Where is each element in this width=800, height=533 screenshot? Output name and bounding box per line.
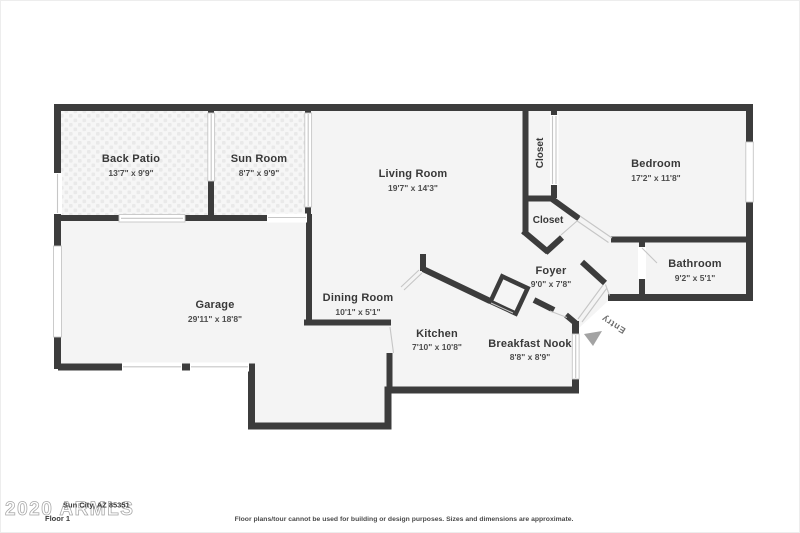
floor-area [58,104,753,429]
room-label-sun-room: Sun Room [231,153,288,165]
room-label-bathroom: Bathroom [668,258,722,270]
listing-address: Sun City, AZ 85351 [63,501,130,510]
room-dims-dining-room: 10'1" x 5'1" [335,307,380,317]
entry-arrow-icon [584,331,602,346]
room-label-garage: Garage [195,299,234,311]
footer: 2020 ARMLS Sun City, AZ 85351 Floor 1 Fl… [5,499,573,523]
disclaimer-text: Floor plans/tour cannot be used for buil… [235,516,574,523]
room-label-closet-lower: Closet [533,215,564,226]
room-dims-bedroom: 17'2" x 11'8" [631,173,680,183]
floor-label: Floor 1 [45,514,70,523]
room-label-breakfast-nook: Breakfast Nook [488,338,572,350]
room-label-foyer: Foyer [536,265,567,277]
room-dims-sun-room: 8'7" x 9'9" [239,168,279,178]
room-label-living-room: Living Room [379,168,448,180]
room-dims-foyer: 9'0" x 7'8" [531,279,571,289]
room-label-back-patio: Back Patio [102,153,160,165]
room-dims-back-patio: 13'7" x 9'9" [108,168,153,178]
floor-plan-page: Back Patio 13'7" x 9'9" Sun Room 8'7" x … [0,0,800,533]
room-label-closet-upper: Closet [535,137,546,168]
room-label-bedroom: Bedroom [631,158,681,170]
room-label-dining-room: Dining Room [323,292,394,304]
room-dims-living-room: 19'7" x 14'3" [388,183,438,193]
room-dims-bathroom: 9'2" x 5'1" [675,273,715,283]
floor-plan-canvas: Back Patio 13'7" x 9'9" Sun Room 8'7" x … [1,1,800,533]
room-dims-breakfast-nook: 8'8" x 8'9" [510,352,550,362]
room-dims-kitchen: 7'10" x 10'8" [412,342,462,352]
room-dims-garage: 29'11" x 18'8" [188,314,242,324]
entry-label: Entry [600,313,628,336]
room-label-kitchen: Kitchen [416,328,458,340]
